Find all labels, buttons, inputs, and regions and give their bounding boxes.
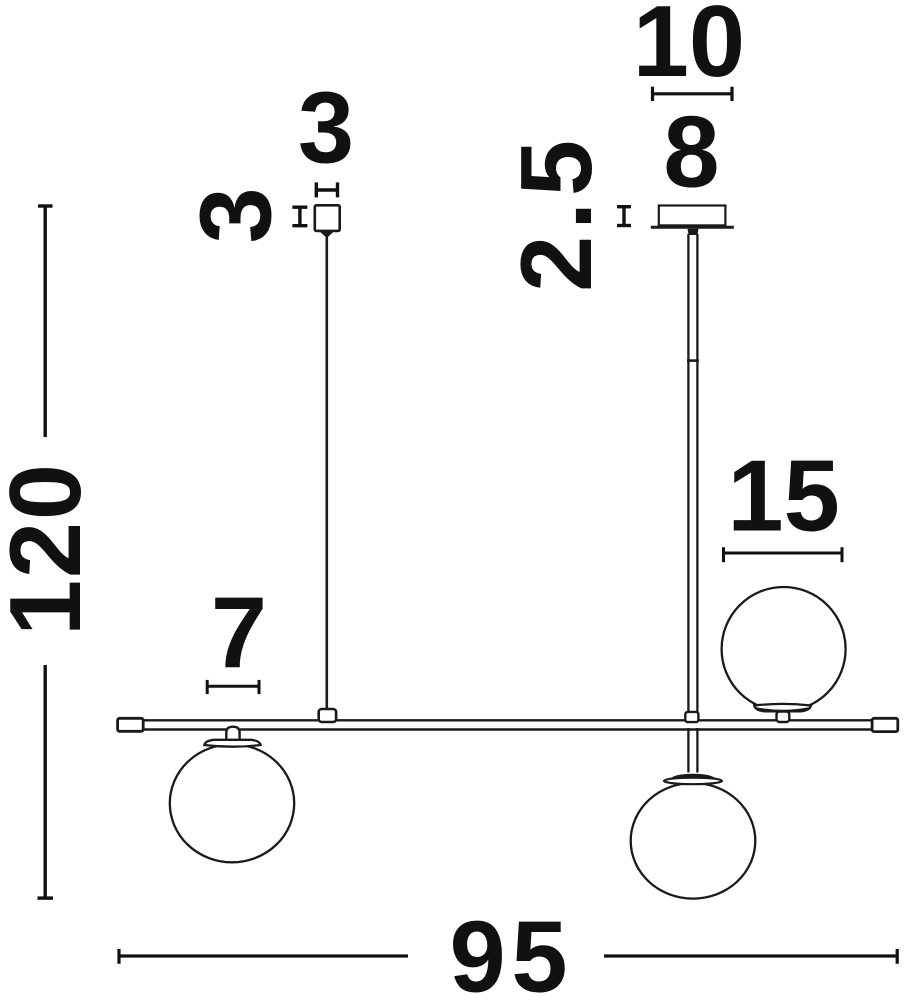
svg-text:15: 15 [727,440,839,552]
svg-text:10: 10 [633,0,745,98]
svg-text:7: 7 [211,578,267,690]
svg-text:3: 3 [181,187,293,243]
svg-text:3: 3 [298,72,354,184]
svg-text:120: 120 [0,464,102,636]
svg-text:8: 8 [663,96,719,208]
svg-text:2.5: 2.5 [501,140,613,292]
